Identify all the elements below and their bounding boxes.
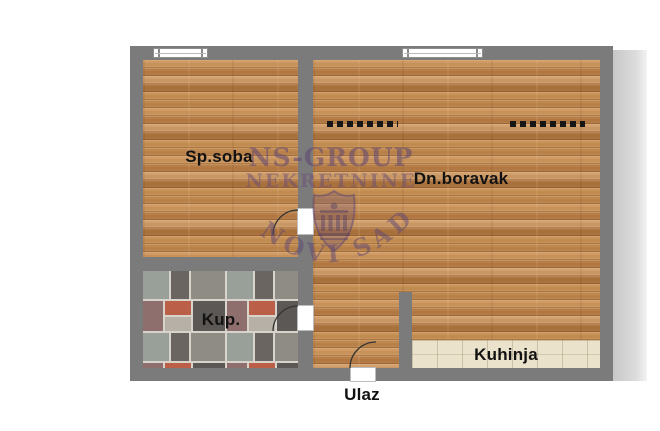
plan-drop-shadow [613,50,647,381]
beam-dashed-right-icon [510,121,585,127]
door-bedroom-icon [297,208,314,235]
beam-dashed-left-icon [327,121,398,127]
label-living: Dn.boravak [414,169,509,189]
label-entrance: Ulaz [344,385,380,405]
window-bedroom-icon [153,48,208,58]
door-bathroom-icon [297,305,314,331]
label-kitchen: Kuhinja [474,345,538,365]
wall-right [600,46,613,381]
room-living-floor [313,60,600,368]
wall-bedroom-bathroom [143,257,298,271]
window-living-icon [402,48,483,58]
wall-left [130,46,143,381]
label-bedroom: Sp.soba [185,147,253,167]
label-bathroom: Kup. [202,310,241,330]
door-entrance-icon [350,367,376,382]
wall-kitchen-stub [399,292,412,368]
floor-plan-canvas: Sp.soba Dn.boravak Kup. Kuhinja Ulaz NS-… [0,0,660,431]
